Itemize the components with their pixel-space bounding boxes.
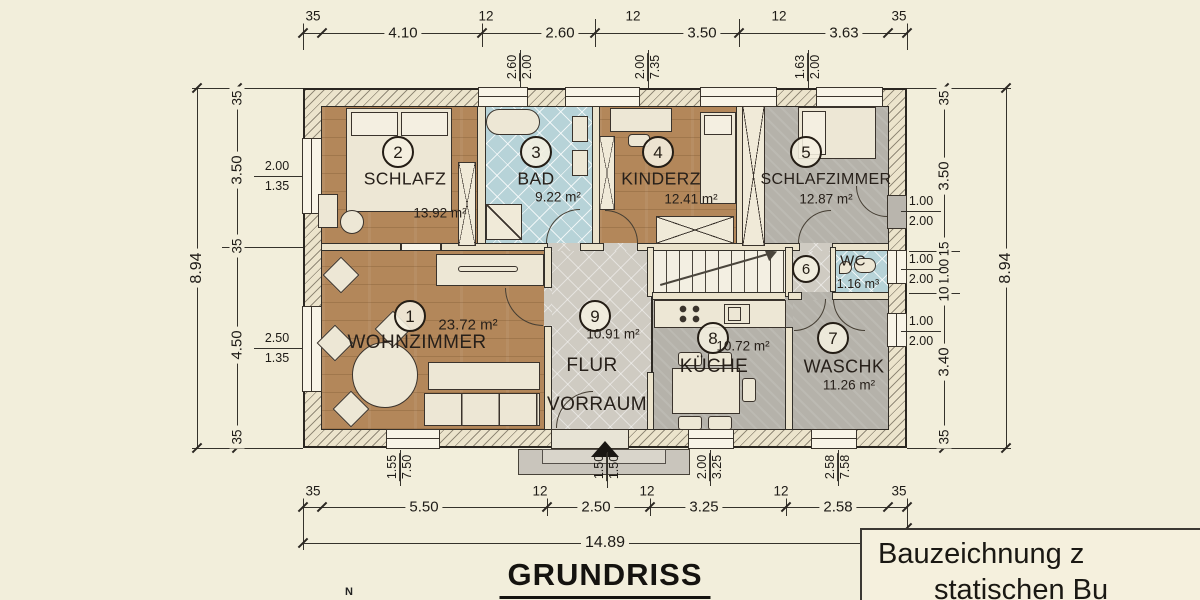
sink <box>572 116 588 142</box>
room-area-kinderz: 12.41 m² <box>664 192 717 207</box>
window <box>478 87 528 107</box>
dim-label: 3.50 <box>936 157 953 194</box>
door-gap <box>604 243 637 251</box>
wall <box>637 243 800 251</box>
window <box>688 429 734 449</box>
room-number-6: 6 <box>792 255 820 283</box>
opening-size: 2.602.00 <box>505 52 535 82</box>
dim-label: 3.25 <box>685 499 722 516</box>
dim-ext <box>907 88 1011 89</box>
room-number-2: 2 <box>382 136 414 168</box>
wall <box>830 247 836 292</box>
dim-ext <box>901 211 941 212</box>
dim-label: 35 <box>937 425 952 448</box>
wall <box>321 243 401 251</box>
pillow <box>351 112 398 136</box>
room-name-kueche: KÜCHE <box>680 356 749 378</box>
stove <box>676 304 704 324</box>
room-name-schlafzimmer: SCHLAFZIMMER <box>760 171 891 189</box>
room-name-flur: FLUR <box>566 355 617 377</box>
dim-label: 35 <box>301 484 324 499</box>
dim-label: 12 <box>528 484 551 499</box>
dim-left-total: 8.94 <box>188 248 206 287</box>
wall <box>647 247 654 297</box>
room-name-schlafz: SCHLAFZ <box>364 169 447 190</box>
dim-right-total: 8.94 <box>997 248 1015 287</box>
dim-label: 4.10 <box>384 25 421 42</box>
opening-size: 1.557.50 <box>385 452 415 482</box>
dim-ext <box>907 448 1011 449</box>
room-area-flur: 10.91 m² <box>586 327 639 342</box>
wardrobe <box>458 162 476 246</box>
window <box>700 87 777 107</box>
title-block-line1: Bauzeichnung z <box>878 538 1084 571</box>
room-number-7: 7 <box>817 322 849 354</box>
room-number-5: 5 <box>790 136 822 168</box>
dim-label: 3.63 <box>825 25 862 42</box>
dim-label: 35 <box>230 234 245 257</box>
dim-top-total: 14.89 <box>581 0 629 1</box>
desk <box>318 194 338 228</box>
dim-ext <box>254 348 302 349</box>
door-gap <box>548 243 580 251</box>
opening-size: 2.007.35 <box>633 52 663 82</box>
title-block: Bauzeichnung z statischen Bu <box>860 528 1200 600</box>
wall-opening <box>401 243 441 251</box>
room-name-wohnzimmer: WOHNZIMMER <box>347 332 486 354</box>
wall <box>477 106 486 247</box>
dim-label: 12 <box>767 9 790 24</box>
room-number-4: 4 <box>642 136 674 168</box>
window <box>386 429 440 449</box>
wardrobe <box>599 136 615 210</box>
dim-ext <box>901 331 941 332</box>
wall <box>652 292 788 300</box>
door-gap <box>544 288 552 326</box>
dim-label: 5.50 <box>405 499 442 516</box>
sofa <box>428 362 540 390</box>
door-gap <box>785 297 793 327</box>
window <box>811 429 857 449</box>
window <box>887 313 907 347</box>
opening-size: 2.00 <box>908 334 934 348</box>
sofa <box>424 393 540 426</box>
dim-label: 2.60 <box>541 25 578 42</box>
dim-ext <box>909 293 960 294</box>
sideboard-handle <box>458 266 518 272</box>
opening-size: 1.00 <box>908 314 934 328</box>
chair <box>742 378 756 402</box>
room-area-bad: 9.22 m² <box>535 190 581 205</box>
wardrobe <box>656 216 734 244</box>
dim-label: 2.50 <box>577 499 614 516</box>
desk <box>610 108 672 132</box>
dim-label: 3.40 <box>936 343 953 380</box>
window <box>302 306 322 392</box>
stool <box>340 210 364 234</box>
north-indicator: N <box>345 586 353 598</box>
room-area-kueche: 10.72 m² <box>716 339 769 354</box>
dim-label: 35 <box>301 9 324 24</box>
room-area-schlafzimmer: 12.87 m² <box>799 192 852 207</box>
window <box>887 250 907 284</box>
floor-plan-canvas: 2 SCHLAFZ 13.92 m² 3 BAD 9.22 m² 4 KINDE… <box>0 0 1200 600</box>
pillow <box>401 112 448 136</box>
opening-size: 2.00 <box>908 214 934 228</box>
dim-bottom-total: 14.89 <box>581 534 629 552</box>
dim-ext <box>254 176 302 177</box>
window <box>816 87 883 107</box>
opening-size: 2.00 <box>908 272 934 286</box>
wall <box>544 247 552 288</box>
opening-size: 2.587.58 <box>823 452 853 482</box>
dim-label: 35 <box>887 484 910 499</box>
dim-label: 35 <box>230 86 245 109</box>
wall <box>647 372 654 430</box>
room-area-waschk: 11.26 m² <box>823 378 875 393</box>
room-area-wc: 1.16 m³ <box>837 277 879 291</box>
dim-line <box>237 88 238 448</box>
opening-size: 1.501.50 <box>592 452 622 482</box>
title-block-line2: statischen Bu <box>934 574 1108 600</box>
chair <box>708 416 732 430</box>
dim-label: 3.50 <box>229 151 246 188</box>
opening-size: 2.00 <box>264 159 290 173</box>
room-name-waschk: WASCHK <box>804 357 885 378</box>
dim-label: 12 <box>635 484 658 499</box>
opening-size: 2.003.25 <box>695 452 725 482</box>
wall <box>580 243 604 251</box>
opening-size: 1.35 <box>264 351 290 365</box>
dim-label: 35 <box>230 425 245 448</box>
dim-label: 10 <box>937 282 952 305</box>
dim-label: 35 <box>887 9 910 24</box>
opening-size: 1.632.00 <box>793 52 823 82</box>
dim-label: 35 <box>937 86 952 109</box>
dim-label: 3.50 <box>683 25 720 42</box>
room-name-wc: WC <box>840 253 866 270</box>
dim-label: 12 <box>621 9 644 24</box>
room-name-bad: BAD <box>517 169 554 190</box>
room-name-kinderz: KINDERZ <box>621 169 701 190</box>
dim-ext <box>192 88 303 89</box>
room-name-vorraum: VORRAUM <box>547 394 647 416</box>
terrace-door <box>887 195 907 229</box>
dim-label: 2.58 <box>819 499 856 516</box>
opening-size: 1.00 <box>908 252 934 266</box>
room-area-wohnzimmer: 23.72 m² <box>438 317 497 334</box>
drawing-title: GRUNDRISS <box>499 557 710 599</box>
shower <box>486 204 522 240</box>
room-number-1: 1 <box>394 300 426 332</box>
opening-size: 1.00 <box>908 194 934 208</box>
door-gap <box>800 243 832 251</box>
pillow <box>704 115 732 135</box>
dim-label: 12 <box>769 484 792 499</box>
wall <box>785 327 793 430</box>
opening-size: 2.50 <box>264 331 290 345</box>
window <box>565 87 640 107</box>
kitchen-sink-basin <box>728 307 741 321</box>
opening-size: 1.35 <box>264 179 290 193</box>
chair <box>678 416 702 430</box>
dim-ext <box>192 448 303 449</box>
sink <box>572 150 588 176</box>
dim-label: 4.50 <box>229 326 246 363</box>
room-area-schlafz: 13.92 m² <box>413 206 466 221</box>
dim-ext <box>901 269 941 270</box>
room-number-3: 3 <box>520 136 552 168</box>
wall <box>832 243 889 251</box>
bathtub <box>486 109 540 135</box>
dim-label: 12 <box>474 9 497 24</box>
